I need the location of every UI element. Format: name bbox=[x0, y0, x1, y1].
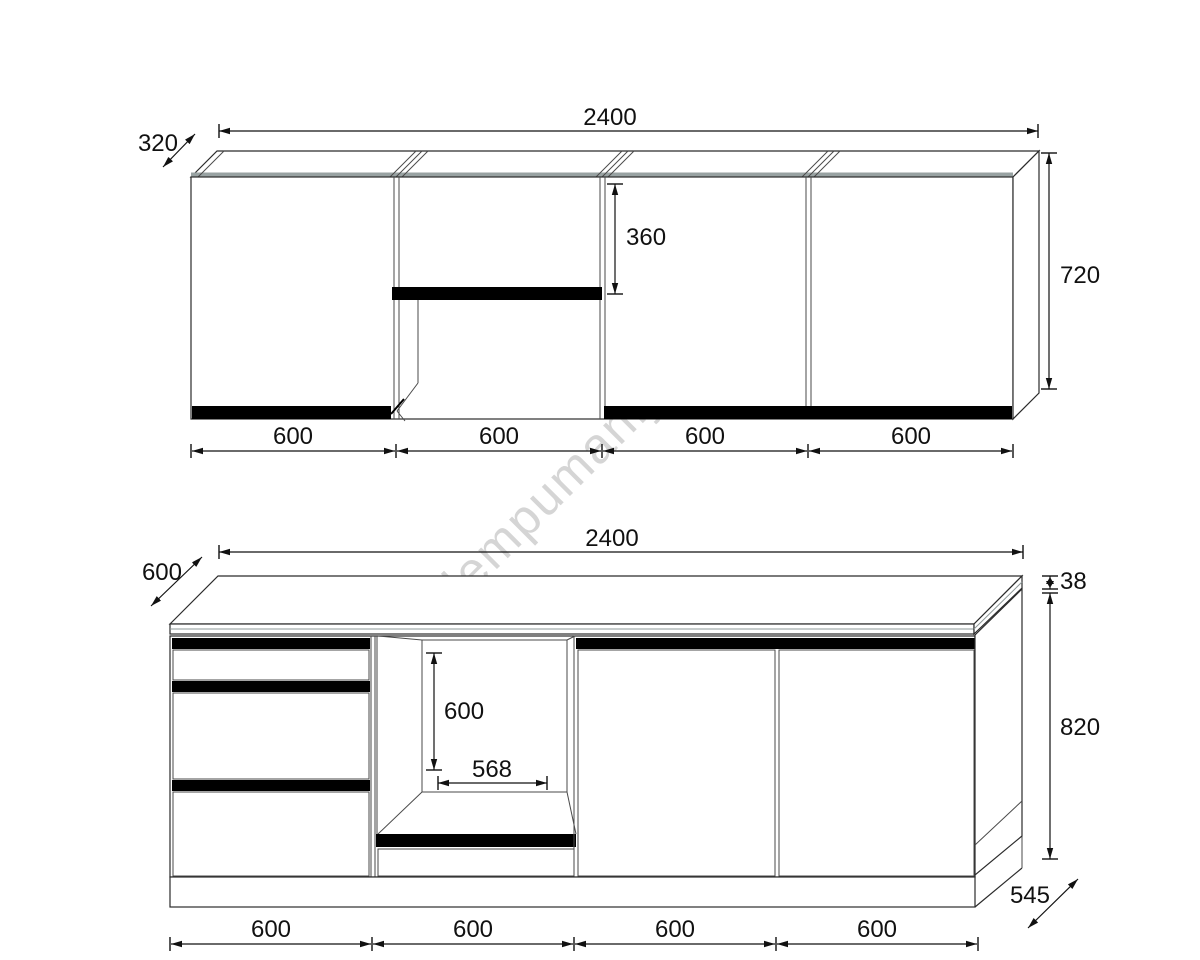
wall-depth-dimension: 320 bbox=[138, 130, 195, 167]
base-cabinets-elevation: 2400 600 38 820 545 bbox=[142, 525, 1100, 951]
wall-height-dimension: 720 bbox=[1041, 153, 1100, 389]
base-width-label: 2400 bbox=[585, 525, 638, 552]
wall-cabinet-side-panel bbox=[1013, 151, 1039, 419]
base-section1-width-label: 600 bbox=[251, 916, 291, 943]
niche-shelf bbox=[392, 287, 602, 300]
niche-height-label: 600 bbox=[444, 698, 484, 725]
wall-left-door-bottom-strip bbox=[192, 406, 391, 419]
wall-width-dimension: 2400 bbox=[219, 104, 1038, 138]
worktop bbox=[170, 576, 1022, 634]
wall-niche-flap-label: 360 bbox=[626, 224, 666, 251]
wall-cabinets-elevation: 2400 320 360 720 bbox=[138, 104, 1100, 458]
wall-section3-width-label: 600 bbox=[685, 423, 725, 450]
base-cabinet-side-panel bbox=[975, 589, 1022, 875]
cabinet-dimension-drawing: lempumanija.lt bbox=[0, 0, 1200, 960]
base-depth-label: 545 bbox=[1010, 882, 1050, 909]
wall-section1-width-label: 600 bbox=[273, 423, 313, 450]
base-section-dimensions: 600 600 600 600 bbox=[170, 916, 978, 951]
worktop-thickness-label: 38 bbox=[1060, 568, 1087, 595]
base-depth-dimension: 545 bbox=[1010, 879, 1078, 928]
base-width-dimension: 2400 bbox=[219, 525, 1023, 559]
base-height-label: 820 bbox=[1060, 714, 1100, 741]
wall-cabinet-top-panel bbox=[191, 151, 1039, 177]
base-section3-width-label: 600 bbox=[655, 916, 695, 943]
base-height-dimension: 820 bbox=[1042, 593, 1100, 859]
wall-height-label: 720 bbox=[1060, 262, 1100, 289]
worktop-depth-dimension: 600 bbox=[142, 557, 202, 606]
base-cabinet-front-face bbox=[170, 636, 975, 877]
worktop-depth-label: 600 bbox=[142, 559, 182, 586]
niche-bottom-strip bbox=[376, 834, 576, 847]
wall-depth-label: 320 bbox=[138, 130, 178, 157]
base-section2-width-label: 600 bbox=[453, 916, 493, 943]
worktop-thickness-dimension: 38 bbox=[1042, 568, 1087, 595]
wall-right-doors-bottom-strip bbox=[604, 406, 1012, 419]
niche-width-label: 568 bbox=[472, 756, 512, 783]
base-section4-width-label: 600 bbox=[857, 916, 897, 943]
wall-section4-width-label: 600 bbox=[891, 423, 931, 450]
wall-section2-width-label: 600 bbox=[479, 423, 519, 450]
drawing-canvas: lempumanija.lt bbox=[0, 0, 1200, 960]
wall-width-label: 2400 bbox=[583, 104, 636, 131]
